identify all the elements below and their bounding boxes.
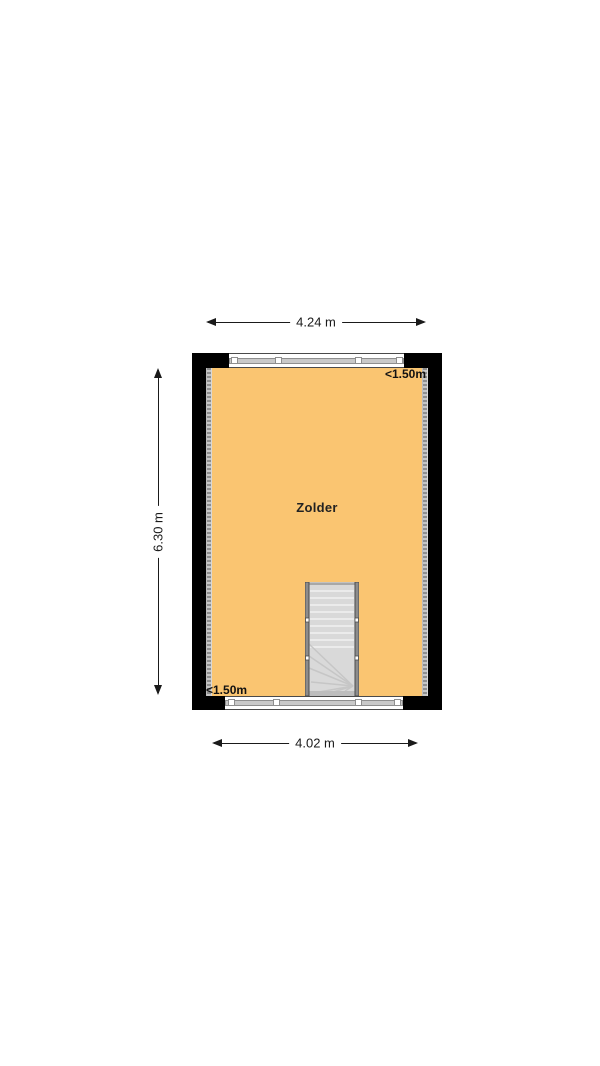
window-glass [225,700,403,706]
window-top [229,353,404,368]
window-mullion [396,357,403,364]
arrowhead-down-icon [154,685,162,695]
dimension-label: 6.30 m [151,506,166,558]
arrowhead-right-icon [416,318,426,326]
window-mullion [394,699,401,706]
window-mullion [355,357,362,364]
wall-corner-top-right [404,353,442,368]
dimension-label: 4.02 m [289,736,341,751]
arrowhead-left-icon [206,318,216,326]
window-mullion [355,699,362,706]
window-bottom [225,696,403,710]
arrowhead-up-icon [154,368,162,378]
window-mullion [275,357,282,364]
window-mullion [231,357,238,364]
window-mullion [273,699,280,706]
ceiling-height-marker-bottom-left: <1.50m [206,683,247,697]
arrowhead-left-icon [212,739,222,747]
room-name-label: Zolder [206,500,428,515]
ceiling-height-line-left [206,368,212,696]
wall-corner-top-left [192,353,229,368]
wall-left [192,353,206,710]
floor-plan-canvas: 4.24 m 6.30 m 4.02 m [0,0,600,1066]
window-glass [229,358,404,364]
staircase [305,582,359,696]
ceiling-height-marker-top-right: <1.50m [385,367,426,381]
wall-corner-bottom-left [192,696,225,710]
wall-right [428,353,442,710]
dimension-label: 4.24 m [290,315,342,330]
dimension-bottom-width: 4.02 m [212,735,418,751]
arrowhead-right-icon [408,739,418,747]
dimension-top-width: 4.24 m [206,314,426,330]
dimension-left-height: 6.30 m [150,368,166,695]
wall-corner-bottom-right [403,696,442,710]
window-mullion [228,699,235,706]
